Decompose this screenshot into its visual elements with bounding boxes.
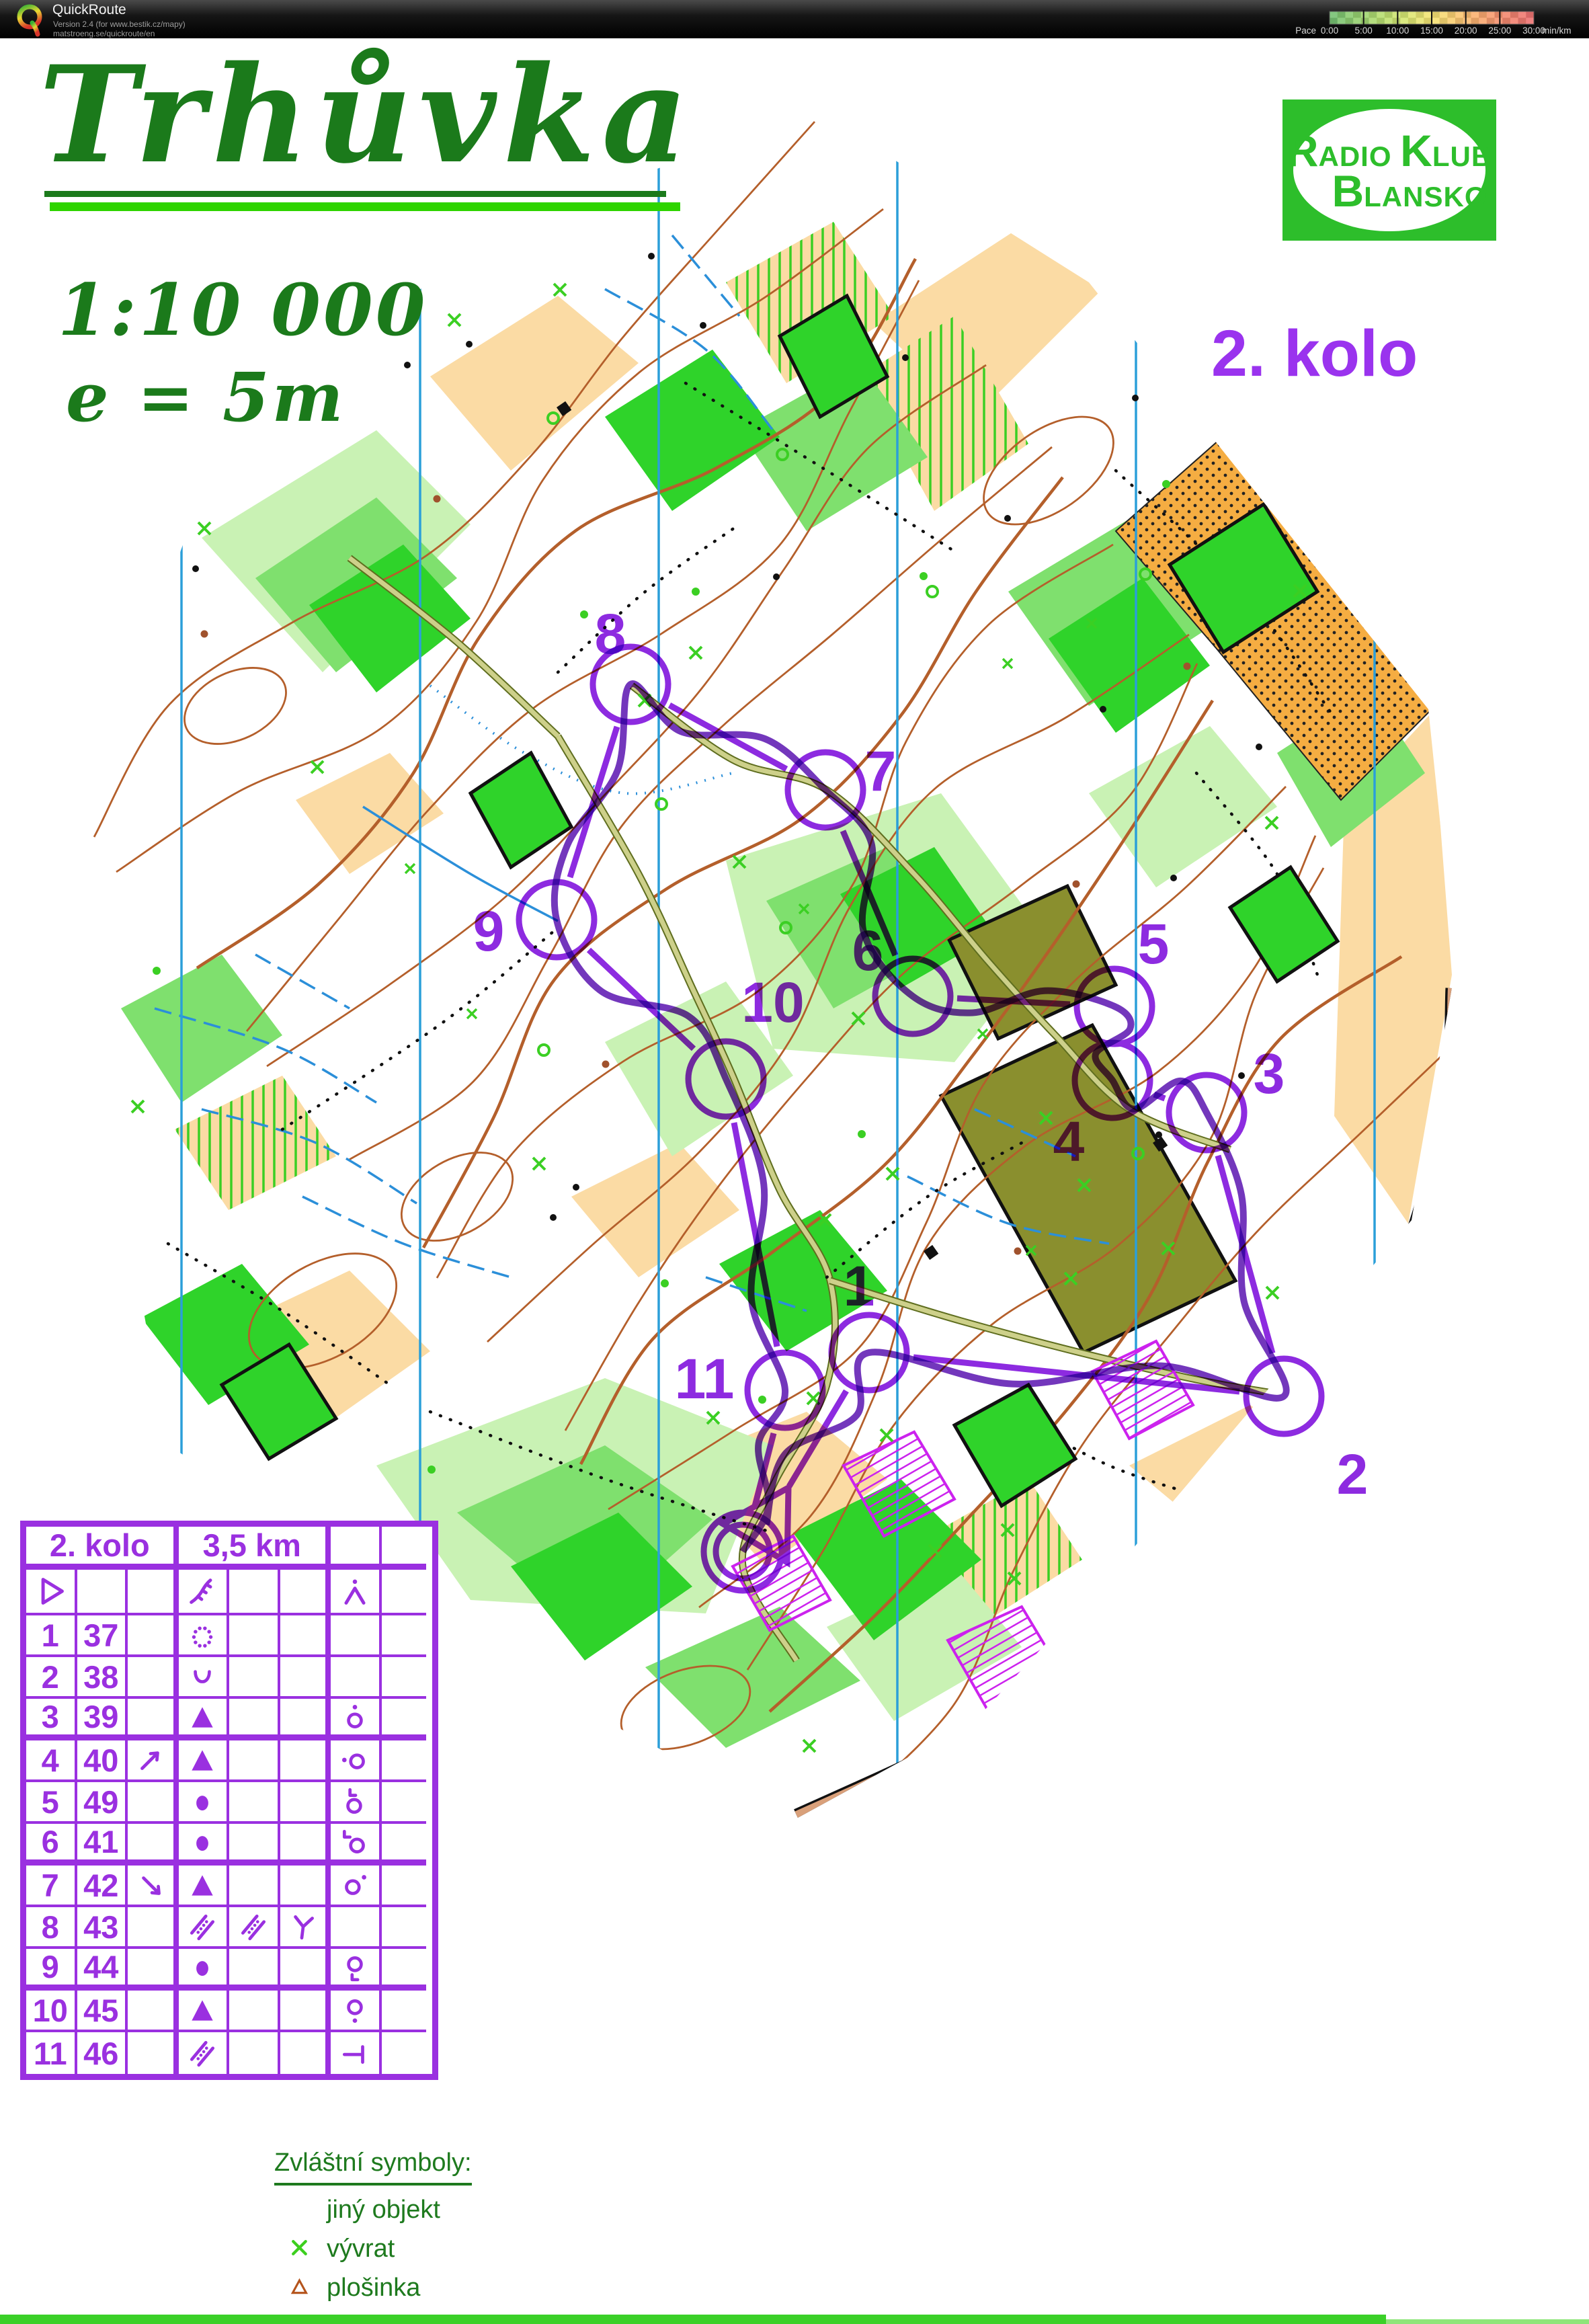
control-number-label: 3	[1254, 1042, 1285, 1105]
desc-cell-F	[280, 1740, 331, 1782]
control-number-cell: 8	[26, 1907, 77, 1949]
control-number-cell: 10	[26, 1991, 77, 2032]
u-open-symbol	[187, 1661, 218, 1692]
special-symbol-label: jiný objekt	[327, 2196, 440, 2225]
desc-cell-D	[179, 1824, 230, 1866]
control-number-cell: 4	[26, 1740, 77, 1782]
desc-cell-G	[331, 1615, 382, 1657]
desc-cell-H	[382, 1949, 427, 1991]
desc-cell-G	[331, 2032, 382, 2074]
desc-cell-C	[128, 1699, 179, 1740]
arrow-se-symbol	[135, 1870, 166, 1900]
desc-cell-E	[229, 1657, 280, 1699]
desc-cell-G	[331, 1782, 382, 1824]
desc-cell-D	[179, 1907, 230, 1949]
desc-empty-cell	[382, 1527, 427, 1570]
desc-cell-G	[331, 1949, 382, 1991]
control-code-cell: 46	[77, 2032, 128, 2074]
desc-cell-C	[128, 1782, 179, 1824]
control-description-table: 2. kolo3,5 km137238339440549641742843944…	[20, 1521, 438, 2080]
special-symbol-item: plošinka	[274, 2273, 472, 2302]
control-number: 11	[34, 2035, 67, 2072]
desc-row-5: 549	[26, 1782, 432, 1824]
desc-cell-H	[382, 1782, 427, 1824]
desc-cell-E	[229, 2032, 280, 2074]
desc-empty-cell	[331, 1527, 382, 1570]
circle-dot-left-symbol	[339, 1745, 370, 1775]
control-number: 10	[33, 1992, 68, 2029]
desc-cell-H	[382, 1991, 427, 2032]
desc-cell-D	[179, 1866, 230, 1907]
desc-cell-C	[128, 1615, 179, 1657]
desc-cell-D	[179, 1615, 230, 1657]
desc-row-4: 440	[26, 1740, 432, 1782]
desc-cell-E	[229, 1699, 280, 1740]
course-length: 3,5 km	[203, 1527, 301, 1564]
logo-line2: BLANSKO	[1303, 165, 1516, 216]
knoll-symbol	[187, 1870, 218, 1900]
title-underline-dark	[44, 191, 666, 197]
desc-start-row	[26, 1570, 432, 1615]
desc-cell-C	[128, 2032, 179, 2074]
desc-cell-C	[128, 1907, 179, 1949]
control-number-label: 10	[741, 971, 804, 1034]
desc-cell-H	[382, 1824, 427, 1866]
desc-cell-D	[179, 1657, 230, 1699]
special-symbols-heading: Zvláštní symboly:	[274, 2149, 472, 2186]
between-line-symbol	[339, 2038, 370, 2069]
desc-cell-H	[382, 1866, 427, 1907]
desc-cell-G	[331, 1991, 382, 2032]
desc-cell-G	[331, 1866, 382, 1907]
special-symbol-label: plošinka	[327, 2274, 420, 2302]
desc-row-11: 1146	[26, 2032, 432, 2074]
circle-dot-below-symbol	[339, 1995, 370, 2026]
desc-cell-C	[128, 1991, 179, 2032]
desc-cell-H	[382, 1699, 427, 1740]
desc-cell-F	[280, 1907, 331, 1949]
desc-cell-G	[331, 1570, 382, 1615]
control-number-cell: 11	[26, 2032, 77, 2074]
circle-dot-right-symbol	[339, 1870, 370, 1900]
control-code-cell: 45	[77, 1991, 128, 2032]
special-symbols-legend: Zvláštní symboly: jiný objekt vývrat plo…	[274, 2149, 472, 2302]
control-number-label: 1	[844, 1254, 875, 1318]
desc-cell-F	[280, 1824, 331, 1866]
desc-cell-B	[77, 1570, 128, 1615]
circle-corner-above-symbol	[339, 1786, 370, 1817]
special-symbol-item: jiný objekt	[274, 2195, 472, 2225]
desc-cell-F	[280, 1866, 331, 1907]
boulder-symbol	[187, 1827, 218, 1857]
desc-row-2: 238	[26, 1657, 432, 1699]
knoll-symbol	[187, 1701, 218, 1732]
junction-y-symbol	[287, 1911, 318, 1942]
desc-cell-C	[128, 1824, 179, 1866]
desc-cell-D	[179, 1699, 230, 1740]
desc-cell-D	[179, 1570, 230, 1615]
desc-cell-G	[331, 1699, 382, 1740]
desc-cell-F	[280, 1570, 331, 1615]
start-triangle-symbol	[34, 1575, 67, 1607]
desc-row-6: 641	[26, 1824, 432, 1866]
control-number-cell: 1	[26, 1615, 77, 1657]
green-x-symbol	[289, 2237, 312, 2260]
desc-cell-G	[331, 1824, 382, 1866]
desc-cell-H	[382, 1907, 427, 1949]
control-number-label: 6	[852, 919, 884, 982]
special-symbol-item: vývrat	[274, 2234, 472, 2263]
junction-dot-symbol	[339, 1575, 371, 1607]
arrow-ne-symbol	[135, 1745, 166, 1775]
circle-corner-below-symbol	[339, 1952, 370, 1982]
desc-row-3: 339	[26, 1699, 432, 1740]
desc-cell-G	[331, 1657, 382, 1699]
desc-header-row: 2. kolo3,5 km	[26, 1527, 432, 1570]
control-number-label: 7	[865, 739, 897, 803]
brown-triangle-symbol	[289, 2276, 312, 2299]
desc-cell-A	[26, 1570, 77, 1615]
control-number-cell: 7	[26, 1866, 77, 1907]
desc-cell-H	[382, 2032, 427, 2074]
clearing-dots-symbol	[187, 1619, 218, 1650]
control-number-label: 11	[675, 1347, 735, 1410]
desc-cell-E	[229, 1570, 280, 1615]
control-code-cell: 39	[77, 1699, 128, 1740]
circle-dot-above-symbol	[339, 1701, 370, 1732]
circle-corner-upleft-symbol	[339, 1827, 370, 1857]
control-code: 49	[83, 1784, 118, 1820]
course-name-cell: 2. kolo	[26, 1527, 179, 1570]
control-number-label: 2	[1337, 1443, 1369, 1506]
desc-cell-D	[179, 1782, 230, 1824]
fence-ruined-symbol	[238, 1911, 269, 1942]
desc-cell-E	[229, 1991, 280, 2032]
desc-row-9: 944	[26, 1949, 432, 1991]
desc-cell-D	[179, 1949, 230, 1991]
control-code-cell: 40	[77, 1740, 128, 1782]
control-number-label: 8	[595, 602, 626, 666]
desc-cell-F	[280, 1991, 331, 2032]
desc-cell-F	[280, 1657, 331, 1699]
control-number: 7	[42, 1867, 59, 1904]
fence-ruined-symbol	[187, 1911, 218, 1942]
control-number-label: 4	[1053, 1110, 1085, 1173]
desc-cell-E	[229, 1949, 280, 1991]
control-code-cell: 49	[77, 1782, 128, 1824]
desc-cell-G	[331, 1907, 382, 1949]
map-scale-label: 1:10 000	[58, 268, 428, 352]
desc-cell-H	[382, 1570, 427, 1615]
control-number-cell: 5	[26, 1782, 77, 1824]
desc-cell-H	[382, 1615, 427, 1657]
control-number-cell: 9	[26, 1949, 77, 1991]
control-number: 4	[42, 1742, 59, 1779]
desc-cell-D	[179, 2032, 230, 2074]
desc-cell-C	[128, 1657, 179, 1699]
control-number: 8	[42, 1909, 59, 1946]
control-code: 44	[83, 1949, 118, 1985]
fence-ruined-symbol	[187, 2038, 218, 2069]
desc-cell-F	[280, 1782, 331, 1824]
desc-cell-F	[280, 1615, 331, 1657]
control-number: 2	[42, 1658, 59, 1695]
knoll-symbol	[187, 1745, 218, 1775]
control-code: 45	[83, 1992, 118, 2029]
bottom-green-bar-light	[1386, 2319, 1589, 2324]
map-title: Trhůvka	[39, 48, 695, 182]
control-code: 37	[83, 1617, 118, 1654]
desc-cell-E	[229, 1866, 280, 1907]
desc-cell-C	[128, 1866, 179, 1907]
control-number-label: 9	[473, 899, 505, 963]
desc-cell-C	[128, 1570, 179, 1615]
course-length-cell: 3,5 km	[179, 1527, 331, 1570]
control-code-cell: 44	[77, 1949, 128, 1991]
desc-row-7: 742	[26, 1866, 432, 1907]
knoll-symbol	[187, 1995, 218, 2026]
control-code: 40	[83, 1742, 118, 1779]
boulder-symbol	[187, 1952, 218, 1982]
desc-cell-E	[229, 1824, 280, 1866]
desc-cell-E	[229, 1740, 280, 1782]
control-code: 39	[83, 1699, 118, 1735]
course-name: 2. kolo	[50, 1527, 150, 1564]
desc-cell-C	[128, 1740, 179, 1782]
desc-cell-H	[382, 1657, 427, 1699]
desc-cell-E	[229, 1615, 280, 1657]
desc-cell-D	[179, 1740, 230, 1782]
control-number: 6	[42, 1824, 59, 1860]
control-number-cell: 6	[26, 1824, 77, 1866]
boulder-symbol	[187, 1786, 218, 1817]
desc-row-8: 843	[26, 1907, 432, 1949]
control-number-cell: 3	[26, 1699, 77, 1740]
control-code-cell: 37	[77, 1615, 128, 1657]
control-number: 3	[42, 1699, 59, 1735]
control-code: 41	[83, 1824, 118, 1860]
desc-cell-E	[229, 1782, 280, 1824]
desc-cell-F	[280, 1699, 331, 1740]
desc-cell-F	[280, 1949, 331, 1991]
bottom-green-bar	[0, 2315, 1386, 2324]
control-code-cell: 38	[77, 1657, 128, 1699]
control-code: 38	[83, 1658, 118, 1695]
desc-row-1: 137	[26, 1615, 432, 1657]
desc-cell-C	[128, 1949, 179, 1991]
desc-cell-G	[331, 1740, 382, 1782]
control-number: 5	[42, 1784, 59, 1820]
desc-cell-E	[229, 1907, 280, 1949]
equidistance-label: e = 5m	[66, 358, 345, 437]
desc-row-10: 1045	[26, 1991, 432, 2032]
control-code-cell: 42	[77, 1866, 128, 1907]
desc-cell-D	[179, 1991, 230, 2032]
special-symbol-label: vývrat	[327, 2235, 395, 2263]
title-underline-bright	[50, 202, 680, 211]
control-code: 46	[83, 2035, 118, 2072]
control-code: 43	[83, 1909, 118, 1946]
spur-symbol	[186, 1575, 218, 1607]
radio-klub-blansko-logo: RADIO KLUB BLANSKO	[1282, 99, 1496, 241]
control-number: 9	[42, 1949, 59, 1985]
control-number-cell: 2	[26, 1657, 77, 1699]
control-code: 42	[83, 1867, 118, 1904]
control-code-cell: 43	[77, 1907, 128, 1949]
round-label: 2. kolo	[1211, 316, 1418, 391]
desc-cell-F	[280, 2032, 331, 2074]
desc-cell-H	[382, 1740, 427, 1782]
control-code-cell: 41	[77, 1824, 128, 1866]
control-number: 1	[42, 1617, 59, 1654]
control-number-label: 5	[1138, 912, 1170, 975]
